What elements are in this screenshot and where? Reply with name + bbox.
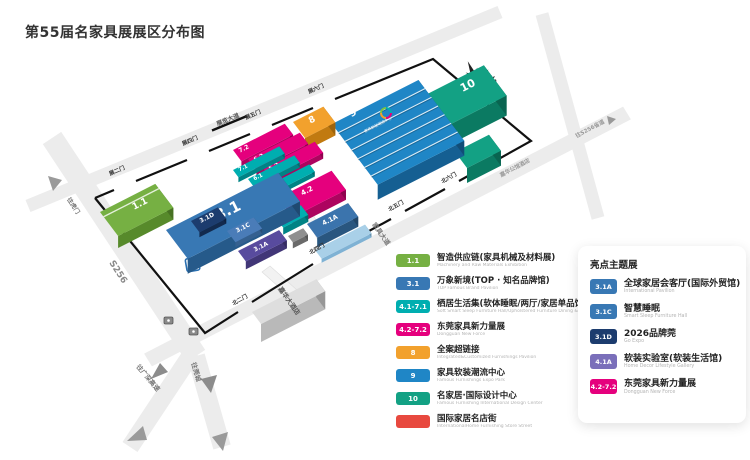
legend-item: 4.1-7.1栖居生活集(软体睡眠/两厅/家居单品馆)Soft Smart Sl… — [396, 299, 582, 315]
legend-title: 万象新境(TOP · 知名品牌馆) — [437, 276, 550, 286]
road-northeast — [536, 12, 605, 219]
highlight-title: 2026品牌莞 — [624, 329, 676, 339]
highlight-panel: 亮点主题展 3.1A全球家居会客厅(国际外贸馆)International Pa… — [578, 246, 746, 423]
legend-badge — [396, 415, 430, 428]
legend-title: 名家居·国际设计中心 — [437, 391, 543, 401]
highlight-subtitle: Smart Sleep Furniture Hall — [624, 314, 687, 321]
highlight-title: 智慧睡眠 — [624, 304, 687, 314]
legend-text: 万象新境(TOP · 知名品牌馆)TOP Famous Brand Pavili… — [437, 276, 550, 292]
legend-text: 东莞家具新力量展Dongguan New Force — [437, 322, 505, 338]
highlight-text: 软装实验室(软装生活馆)Home Decor Lifestyle Gallery — [624, 354, 722, 371]
highlight-badge: 4.2-7.2 — [590, 379, 617, 394]
legend-subtitle: Famous Furnishings Expo Park — [437, 378, 505, 384]
legend-text: 名家居·国际设计中心Famous Furnishing Internationa… — [437, 391, 543, 407]
legend-text: 家具软装潮流中心Famous Furnishings Expo Park — [437, 368, 505, 384]
legend-item: 8全案超链接Integrated&Customized Furnishings … — [396, 345, 582, 361]
highlight-text: 东莞家具新力量展Dongguan New Force — [624, 379, 696, 396]
legend-badge: 9 — [396, 369, 430, 382]
highlight-panel-list: 3.1A全球家居会客厅(国际外贸馆)International Pavilion… — [590, 279, 734, 396]
legend-badge: 4.2-7.2 — [396, 323, 430, 336]
legend-title: 智造供应链(家具机械及材料展) — [437, 253, 555, 263]
legend-subtitle: TOP Famous Brand Pavilion — [437, 286, 550, 292]
legend-item: 4.2-7.2东莞家具新力量展Dongguan New Force — [396, 322, 582, 338]
highlight-subtitle: Home Decor Lifestyle Gallery — [624, 364, 722, 371]
camera-icon — [189, 328, 198, 335]
highlight-title: 东莞家具新力量展 — [624, 379, 696, 389]
legend: 1.1智造供应链(家具机械及材料展)Machinery and Raw Mate… — [396, 253, 582, 437]
legend-badge: 8 — [396, 346, 430, 359]
legend-subtitle: Dongguan New Force — [437, 332, 505, 338]
legend-title: 国际家居名店街 — [437, 414, 532, 424]
legend-subtitle: Famous Furnishing International Design C… — [437, 401, 543, 407]
legend-text: 智造供应链(家具机械及材料展)Machinery and Raw Materia… — [437, 253, 555, 269]
highlight-item: 4.1A软装实验室(软装生活馆)Home Decor Lifestyle Gal… — [590, 354, 734, 371]
highlight-badge: 3.1A — [590, 279, 617, 294]
highlight-title: 软装实验室(软装生活馆) — [624, 354, 722, 364]
legend-badge: 10 — [396, 392, 430, 405]
legend-subtitle: InternationalHome Furnishing Store Stree… — [437, 424, 532, 430]
gate-label-7: 北六门 — [440, 170, 459, 185]
legend-title: 家具软装潮流中心 — [437, 368, 505, 378]
legend-text: 栖居生活集(软体睡眠/两厅/家居单品馆)Soft Smart Sleep Fur… — [437, 299, 582, 315]
legend-item: 10名家居·国际设计中心Famous Furnishing Internatio… — [396, 391, 582, 407]
highlight-text: 全球家居会客厅(国际外贸馆)International Pavilion — [624, 279, 740, 296]
legend-badge: 3.1 — [396, 277, 430, 290]
highlight-text: 2026品牌莞Go Expo — [624, 329, 676, 346]
legend-item: 3.1万象新境(TOP · 知名品牌馆)TOP Famous Brand Pav… — [396, 276, 582, 292]
highlight-badge: 3.1C — [590, 304, 617, 319]
legend-item: 1.1智造供应链(家具机械及材料展)Machinery and Raw Mate… — [396, 253, 582, 269]
highlight-subtitle: Dongguan New Force — [624, 390, 696, 397]
legend-badge: 4.1-7.1 — [396, 300, 430, 313]
legend-text: 国际家居名店街InternationalHome Furnishing Stor… — [437, 414, 532, 430]
highlight-panel-header: 亮点主题展 — [590, 257, 734, 271]
legend-badge: 1.1 — [396, 254, 430, 267]
legend-item: 国际家居名店街InternationalHome Furnishing Stor… — [396, 414, 582, 430]
highlight-item: 3.1A全球家居会客厅(国际外贸馆)International Pavilion — [590, 279, 734, 296]
highlight-text: 智慧睡眠Smart Sleep Furniture Hall — [624, 304, 687, 321]
legend-subtitle: Machinery and Raw Materials Exhibition — [437, 263, 555, 269]
camera-icon — [164, 317, 173, 324]
legend-subtitle: Integrated&Customized Furnishings Pavili… — [437, 355, 536, 361]
legend-subtitle: Soft Smart Sleep Furniture Hall/Upholste… — [437, 309, 582, 315]
annex-box — [288, 228, 308, 248]
legend-title: 栖居生活集(软体睡眠/两厅/家居单品馆) — [437, 299, 582, 309]
highlight-title: 全球家居会客厅(国际外贸馆) — [624, 279, 740, 289]
legend-text: 全案超链接Integrated&Customized Furnishings P… — [437, 345, 536, 361]
legend-title: 东莞家具新力量展 — [437, 322, 505, 332]
highlight-item: 4.2-7.2东莞家具新力量展Dongguan New Force — [590, 379, 734, 396]
highlight-subtitle: Go Expo — [624, 339, 676, 346]
highlight-badge: 4.1A — [590, 354, 617, 369]
legend-item: 9家具软装潮流中心Famous Furnishings Expo Park — [396, 368, 582, 384]
highlight-item: 3.1D2026品牌莞Go Expo — [590, 329, 734, 346]
legend-title: 全案超链接 — [437, 345, 536, 355]
highlight-badge: 3.1D — [590, 329, 617, 344]
highlight-item: 3.1C智慧睡眠Smart Sleep Furniture Hall — [590, 304, 734, 321]
highlight-subtitle: International Pavilion — [624, 289, 740, 296]
gate-label-6: 北五门 — [387, 198, 406, 213]
